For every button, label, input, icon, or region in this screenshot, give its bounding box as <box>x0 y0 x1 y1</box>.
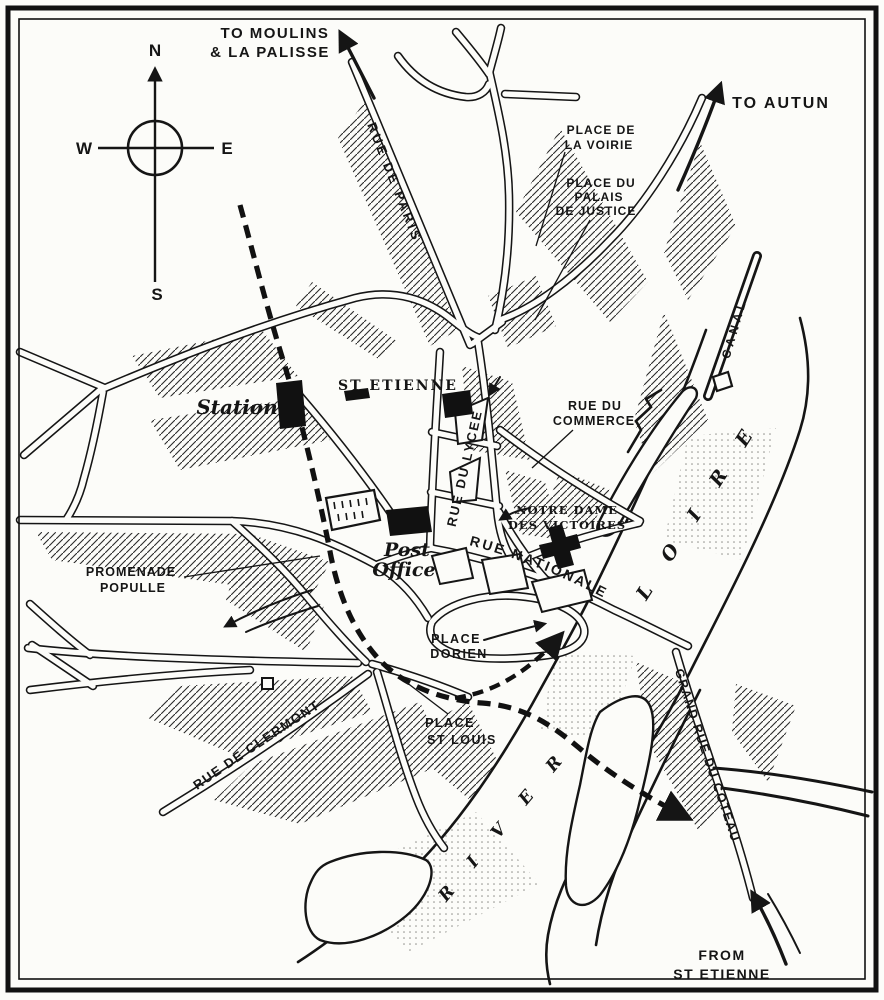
place-dorien-label-2: DORIEN <box>430 647 488 661</box>
promenade-label-2: POPULLE <box>100 581 166 595</box>
post-office-label-2: Office <box>372 559 435 581</box>
st-etienne-church-building <box>442 390 473 418</box>
to-autun-label: TO AUTUN <box>732 95 830 112</box>
to-moulins-label-1: TO MOULINS <box>221 25 330 42</box>
place-st-louis-label-2: ST LOUIS <box>427 733 497 747</box>
place-voirie-label-1: PLACE DE <box>567 123 636 137</box>
compass-west-label: W <box>76 139 93 158</box>
place-dorien-label-1: PLACE <box>431 632 481 646</box>
compass-south-label: S <box>151 285 162 304</box>
post-office-building <box>386 506 432 536</box>
to-moulins-label-2: & LA PALISSE <box>210 44 330 61</box>
rue-commerce-label-2: COMMERCE <box>553 414 635 428</box>
rue-commerce-label-1: RUE DU <box>568 399 622 413</box>
station-label: Station <box>196 395 277 419</box>
station-building <box>276 380 306 429</box>
notre-dame-label-1: NOTRE DAME <box>516 503 618 517</box>
compass-north-label: N <box>149 41 161 60</box>
map-page: N S W E TO MOULINS & LA PALISSE TO AUTUN… <box>0 0 884 1000</box>
palais-label-3: DE JUSTICE <box>556 204 637 218</box>
st-etienne-label: ST ETIENNE <box>338 378 458 394</box>
place-voirie-label-2: LA VOIRIE <box>565 138 634 152</box>
palais-label-2: PALAIS <box>574 190 623 204</box>
place-st-louis-label-1: PLACE <box>425 716 475 730</box>
promenade-label-1: PROMENADE <box>86 565 176 579</box>
post-office-label-1: Post <box>383 539 430 561</box>
compass-east-label: E <box>221 139 232 158</box>
town-map: N S W E TO MOULINS & LA PALISSE TO AUTUN… <box>0 0 884 1000</box>
palais-label-1: PLACE DU <box>566 176 635 190</box>
from-st-etienne-label-1: FROM <box>698 947 745 963</box>
notre-dame-label-2: DES VICTOIRES <box>508 518 626 532</box>
